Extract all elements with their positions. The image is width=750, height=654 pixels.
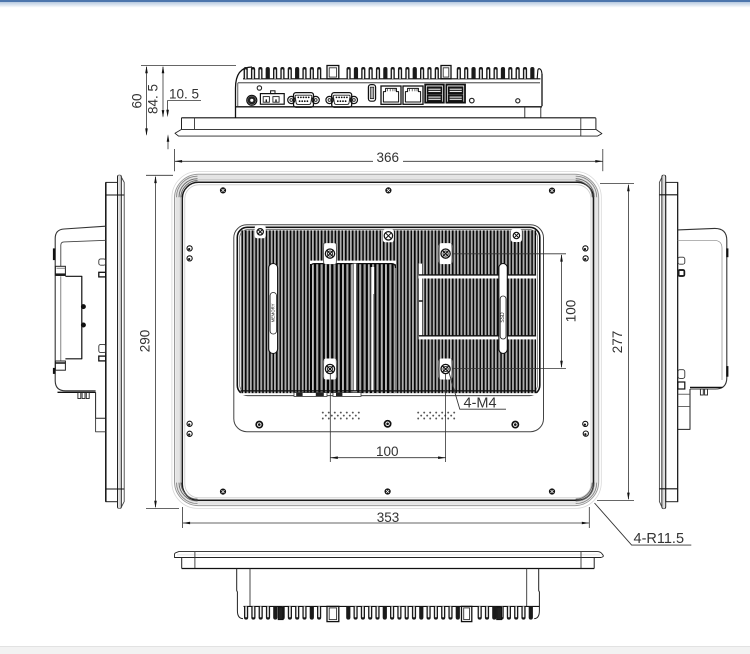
svg-text:353: 353: [377, 510, 400, 525]
svg-text:100: 100: [564, 300, 579, 323]
svg-text:84. 5: 84. 5: [146, 84, 161, 114]
svg-text:10. 5: 10. 5: [169, 86, 199, 101]
svg-text:4-R11.5: 4-R11.5: [634, 531, 685, 547]
svg-text:60: 60: [130, 93, 145, 108]
svg-text:SSD: SSD: [500, 312, 506, 323]
svg-text:277: 277: [610, 331, 625, 354]
svg-text:290: 290: [138, 330, 153, 353]
svg-text:MEMORY: MEMORY: [270, 303, 275, 322]
svg-text:100: 100: [376, 444, 399, 459]
svg-text:366: 366: [377, 150, 400, 165]
svg-text:4-M4: 4-M4: [464, 396, 497, 412]
